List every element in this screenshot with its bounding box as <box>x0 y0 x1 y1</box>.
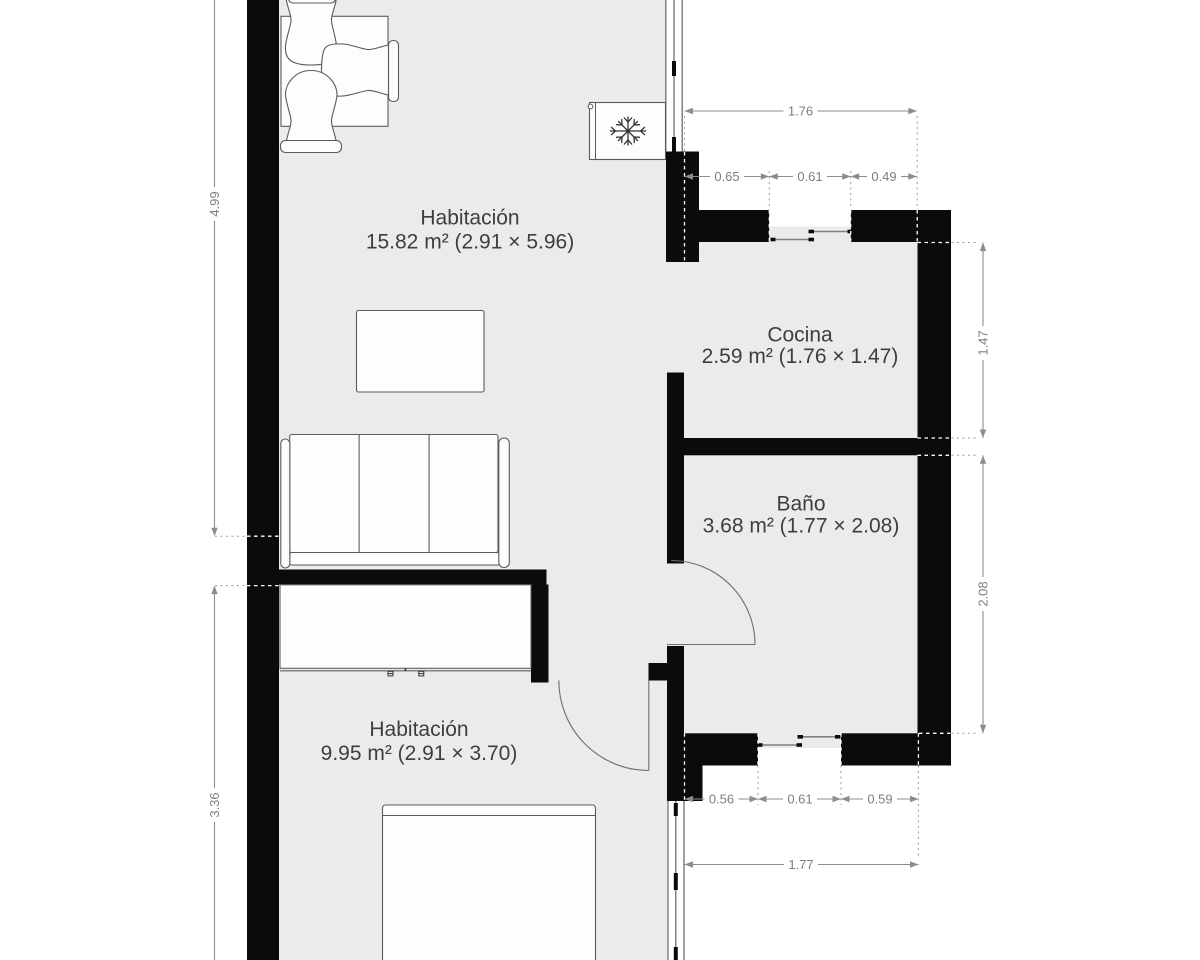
svg-text:4.99: 4.99 <box>207 191 222 216</box>
svg-text:0.61: 0.61 <box>787 792 812 807</box>
svg-text:2.08: 2.08 <box>976 581 991 606</box>
svg-text:0.59: 0.59 <box>867 792 892 807</box>
svg-text:1.76: 1.76 <box>788 104 813 119</box>
svg-text:Habitación: Habitación <box>369 718 468 741</box>
svg-text:1.47: 1.47 <box>976 330 991 355</box>
svg-text:Baño: Baño <box>776 493 825 516</box>
svg-text:0.65: 0.65 <box>714 169 739 184</box>
svg-text:0.49: 0.49 <box>871 169 896 184</box>
svg-text:0.56: 0.56 <box>709 792 734 807</box>
svg-text:15.82 m² (2.91 × 5.96): 15.82 m² (2.91 × 5.96) <box>366 231 574 254</box>
svg-text:3.36: 3.36 <box>207 792 222 817</box>
svg-text:Habitación: Habitación <box>420 207 519 230</box>
svg-text:3.68 m² (1.77 × 2.08): 3.68 m² (1.77 × 2.08) <box>703 515 900 538</box>
svg-text:2.59 m² (1.76 × 1.47): 2.59 m² (1.76 × 1.47) <box>702 345 899 368</box>
svg-text:Cocina: Cocina <box>767 324 833 347</box>
svg-text:9.95 m² (2.91 × 3.70): 9.95 m² (2.91 × 3.70) <box>321 742 518 765</box>
svg-text:0.61: 0.61 <box>797 169 822 184</box>
svg-text:1.77: 1.77 <box>788 857 813 872</box>
